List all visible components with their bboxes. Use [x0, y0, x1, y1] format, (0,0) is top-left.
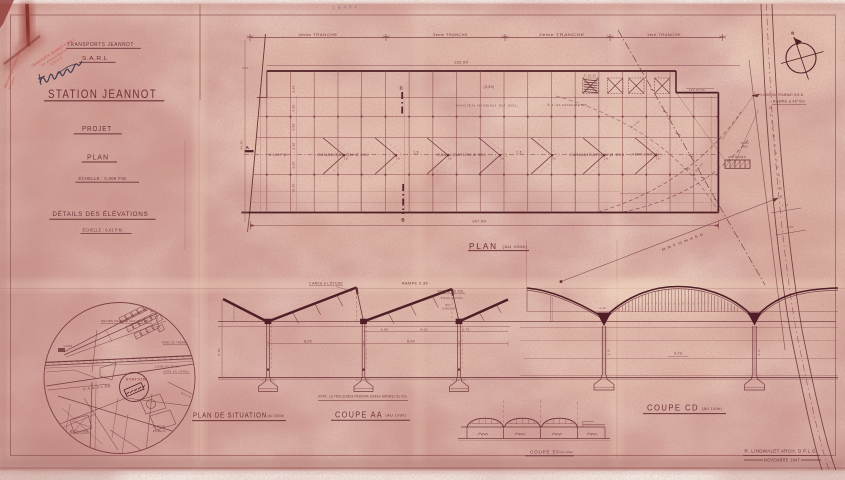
svg-text:S T A T I O N J E A N N O T: S T A T I O N J E A N N O T — [646, 302, 710, 306]
svg-text:3,50: 3,50 — [292, 85, 296, 92]
svg-text:PLAN: PLAN — [469, 241, 498, 251]
svg-text:1,5: 1,5 — [413, 150, 419, 154]
svg-text:PARC DU TRÉPAS: PARC DU TRÉPAS — [163, 340, 188, 345]
svg-text:R. LINDWALET ARCH. D.P.L.G.: R. LINDWALET ARCH. D.P.L.G. — [745, 449, 818, 454]
svg-text:2%: 2% — [396, 157, 401, 161]
svg-text:ÉGLISE: ÉGLISE — [70, 429, 89, 434]
svg-text:2%: 2% — [656, 157, 661, 161]
svg-text:A: A — [775, 151, 778, 155]
svg-text:3,50: 3,50 — [292, 161, 296, 168]
svg-text:SOL NATUREL: SOL NATUREL — [356, 379, 371, 382]
svg-text:3,25: 3,25 — [787, 225, 794, 229]
svg-text:SOL NATUREL: SOL NATUREL — [452, 379, 467, 382]
svg-text:2ème TRANCHE: 2ème TRANCHE — [539, 33, 585, 37]
svg-text:C: C — [400, 86, 404, 91]
svg-text:147,09: 147,09 — [472, 219, 486, 223]
svg-text:PLAN: PLAN — [87, 153, 109, 162]
svg-text:(AU 100è): (AU 100è) — [386, 414, 407, 418]
svg-text:S.A.R.L: S.A.R.L — [82, 56, 108, 62]
svg-text:Ø 100 P.M.: Ø 100 P.M. — [269, 153, 288, 157]
svg-text:2%: 2% — [604, 157, 609, 161]
svg-text:132,09: 132,09 — [454, 60, 468, 64]
svg-text:0,40: 0,40 — [600, 306, 607, 310]
svg-text:CANALISATION Ø 150: CANALISATION Ø 150 — [437, 153, 486, 157]
svg-text:PLAN DE SITUATION: PLAN DE SITUATION — [193, 411, 267, 420]
svg-text:A: A — [769, 106, 772, 110]
svg-text:COUPE CD: COUPE CD — [647, 404, 699, 413]
svg-text:(3,50): (3,50) — [484, 85, 495, 89]
svg-text:ANCIEN MARCHÉ AUX CHEVAUX: ANCIEN MARCHÉ AUX CHEVAUX — [101, 318, 152, 323]
svg-text:A: A — [777, 173, 780, 177]
svg-text:DÉTAILS DES ÉLÉVATIONS: DÉTAILS DES ÉLÉVATIONS — [52, 209, 148, 218]
svg-text:SOL NATUREL: SOL NATUREL — [261, 379, 276, 382]
svg-text:E: E — [772, 134, 775, 138]
svg-text:4,73: 4,73 — [674, 352, 682, 356]
svg-text:L: L — [770, 113, 772, 117]
svg-text:PROJET: PROJET — [82, 124, 112, 133]
svg-text:NOTA : LE TROLLEYBUS PRENDRA N: NOTA : LE TROLLEYBUS PRENDRA NIVEAU NATU… — [319, 395, 408, 399]
svg-text:RAMPE à 45°/00: RAMPE à 45°/00 — [773, 99, 805, 103]
svg-text:NID: NID — [445, 303, 451, 307]
svg-text:(AU 200è): (AU 200è) — [503, 245, 528, 249]
svg-text:(AU 200è): (AU 200è) — [560, 450, 574, 454]
svg-text:E: E — [780, 194, 783, 198]
svg-text:C: C — [774, 144, 777, 148]
svg-text:R: R — [779, 187, 782, 191]
svg-text:(AU 100è): (AU 100è) — [702, 407, 722, 411]
svg-text:ANCIEN NIVEAU DU SOL: ANCIEN NIVEAU DU SOL — [456, 104, 518, 108]
svg-text:3,50: 3,50 — [292, 142, 296, 149]
svg-text:1,5: 1,5 — [516, 150, 522, 154]
svg-text:2%: 2% — [344, 157, 349, 161]
svg-text:STATION: STATION — [126, 378, 147, 382]
svg-text:V: V — [776, 166, 779, 170]
svg-text:5,00: 5,00 — [683, 167, 690, 171]
svg-text:1ère TRANCHE: 1ère TRANCHE — [647, 33, 681, 37]
svg-text:QUAI: QUAI — [741, 141, 749, 145]
svg-text:3ème TRANCHE: 3ème TRANCHE — [433, 33, 468, 37]
svg-text:4,50: 4,50 — [292, 123, 296, 130]
svg-text:L: L — [776, 158, 778, 162]
svg-text:I: I — [779, 180, 780, 184]
svg-text:3,10: 3,10 — [607, 349, 611, 356]
svg-text:2%: 2% — [552, 157, 557, 161]
svg-text:NOVEMBRE 1947: NOVEMBRE 1947 — [764, 457, 800, 462]
svg-text:RAMPE 0,35: RAMPE 0,35 — [402, 282, 428, 286]
svg-text:3,10: 3,10 — [757, 349, 761, 356]
svg-text:(AU 10000è): (AU 10000è) — [268, 414, 285, 418]
svg-text:PUBLIC: PUBLIC — [153, 429, 166, 433]
svg-text:COUPE EF: COUPE EF — [530, 449, 560, 455]
svg-text:44,50: 44,50 — [240, 140, 244, 150]
svg-text:GARE: GARE — [64, 344, 73, 348]
svg-text:D'ABEILLES: D'ABEILLES — [442, 306, 456, 310]
svg-text:8,00: 8,00 — [407, 340, 415, 344]
svg-text:A: A — [246, 145, 250, 150]
svg-text:É: É — [772, 126, 775, 131]
svg-text:2,70: 2,70 — [217, 348, 221, 355]
svg-text:NIVEAU DU SOL: NIVEAU DU SOL — [438, 290, 465, 294]
svg-text:2%: 2% — [500, 157, 505, 161]
svg-text:ÉCHELLE : 0,005 P.M.: ÉCHELLE : 0,005 P.M. — [79, 176, 128, 181]
svg-text:P. 50 50: P. 50 50 — [584, 74, 597, 78]
svg-text:B: B — [401, 218, 405, 223]
svg-text:LIGNE DU TRAMWAY B.B.B.: LIGNE DU TRAMWAY B.B.B. — [761, 93, 804, 97]
svg-text:(VERS éGOUT): (VERS éGOUT) — [631, 153, 660, 157]
svg-text:4,50: 4,50 — [292, 104, 296, 111]
svg-text:2%: 2% — [448, 157, 453, 161]
svg-text:0,70: 0,70 — [462, 327, 469, 331]
svg-text:4,00: 4,00 — [381, 327, 388, 331]
svg-text:4,00: 4,00 — [420, 327, 427, 331]
svg-text:LIGNE DU TRAM: LIGNE DU TRAM — [155, 365, 179, 369]
svg-text:2 ARCS à L'ÉTUDE: 2 ARCS à L'ÉTUDE — [309, 281, 343, 286]
svg-text:CANALISATION Ø 200: CANALISATION Ø 200 — [570, 153, 625, 157]
svg-text:STATION JEANNOT: STATION JEANNOT — [48, 89, 157, 101]
svg-text:L: L — [771, 120, 773, 124]
svg-text:TRANSPORTS JEANNOT: TRANSPORTS JEANNOT — [67, 42, 134, 48]
svg-text:CANALISATION Ø 100: CANALISATION Ø 100 — [317, 153, 369, 157]
svg-text:ÉCHELLE : 0,01 P.M.: ÉCHELLE : 0,01 P.M. — [83, 227, 124, 232]
svg-text:COUPE AA: COUPE AA — [335, 410, 383, 420]
svg-text:10,50: 10,50 — [292, 183, 296, 193]
svg-text:8,00: 8,00 — [304, 340, 312, 344]
svg-text:1,75: 1,75 — [782, 203, 789, 207]
svg-text:4ème TRANCHE: 4ème TRANCHE — [299, 33, 338, 37]
svg-text:GARE DU CANAL: GARE DU CANAL — [163, 370, 189, 374]
